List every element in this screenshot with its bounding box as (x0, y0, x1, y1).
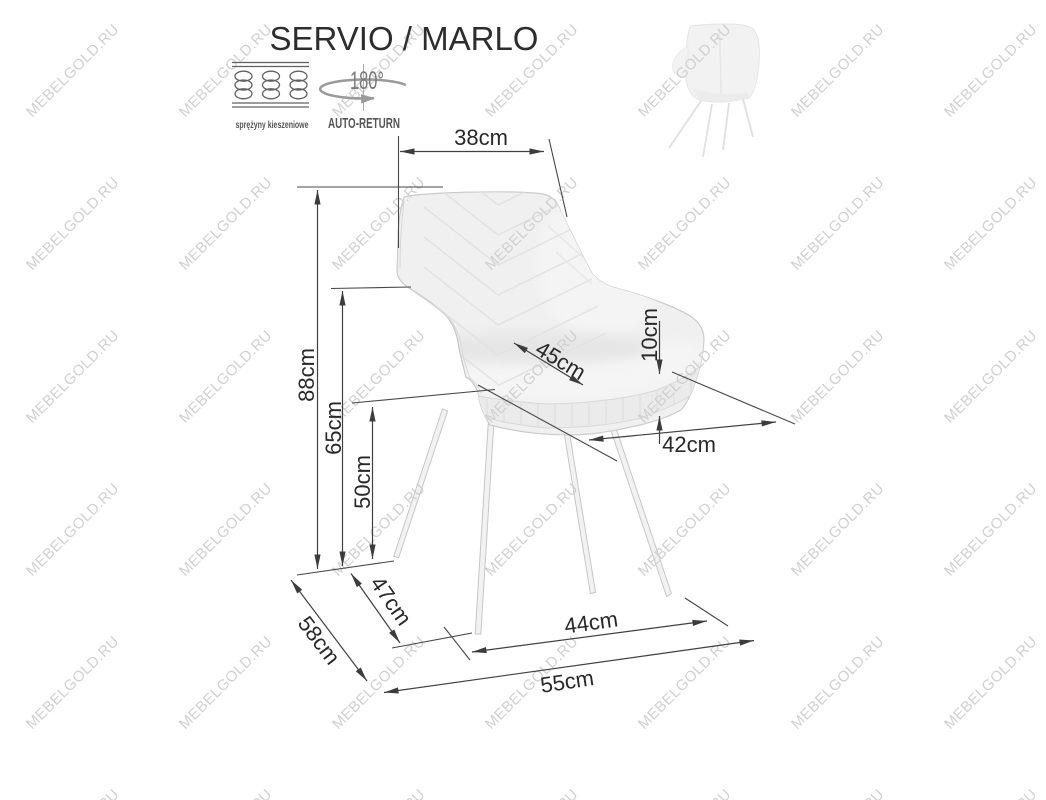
svg-text:42cm: 42cm (662, 432, 716, 457)
svg-text:50cm: 50cm (350, 455, 375, 509)
svg-text:SERVIO / MARLO: SERVIO / MARLO (270, 20, 539, 57)
svg-text:10cm: 10cm (637, 308, 662, 362)
svg-text:88cm: 88cm (294, 348, 319, 402)
svg-text:38cm: 38cm (454, 125, 508, 150)
svg-text:sprężyny kieszeniowe: sprężyny kieszeniowe (236, 120, 309, 131)
svg-text:180°: 180° (350, 67, 384, 95)
svg-text:AUTO-RETURN: AUTO-RETURN (328, 115, 400, 132)
svg-text:65cm: 65cm (321, 401, 346, 455)
